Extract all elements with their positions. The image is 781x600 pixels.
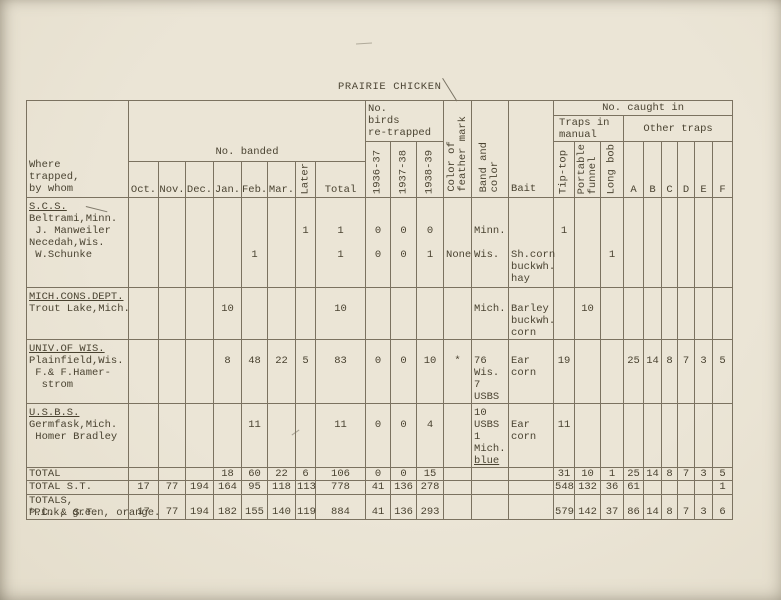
cell-line: USBS (472, 391, 508, 403)
cell-line (624, 343, 643, 355)
total-e-cell: 3 (695, 468, 713, 481)
cell (129, 468, 159, 481)
cell-line: Wis. (472, 249, 508, 261)
cell (129, 198, 159, 288)
cell-line: 0 (366, 225, 390, 237)
total-total-cell: 106 (316, 468, 366, 481)
scs-later-cell: 1 (296, 198, 316, 288)
cell-line: 83 (316, 355, 365, 367)
cell (695, 404, 713, 468)
cell (444, 468, 472, 481)
cell-line: S.C.S. (27, 201, 128, 213)
cell (644, 481, 662, 495)
cell-line: F.& F.Hamer- (27, 367, 128, 379)
cell (601, 288, 624, 340)
cell (391, 288, 417, 340)
cell-line (678, 343, 694, 355)
col-group-no-banded: No. banded (129, 101, 366, 162)
col-header-1937-38: 1937-38 (391, 142, 417, 198)
cell (662, 481, 678, 495)
total-long-bob-cell: 1 (601, 468, 624, 481)
totals-portable-cell: 142 (575, 495, 601, 520)
cell-line: corn (509, 327, 553, 339)
col-header-trap-e: E (695, 142, 713, 198)
total-st-later-cell: 113 (296, 481, 316, 495)
cell-line: None (444, 249, 471, 261)
cell-line: hay (509, 273, 553, 285)
cell-line: buckwh. (509, 261, 553, 273)
cell (268, 288, 296, 340)
cell (417, 288, 444, 340)
col-header-trap-c: C (662, 142, 678, 198)
cell-line: birds (366, 115, 443, 127)
col-header-nov: Nov. (159, 162, 186, 198)
col-header-trap-f: F (713, 142, 733, 198)
univ-c-cell: 8 (662, 340, 678, 404)
cell-line: No. (366, 103, 443, 115)
scanned-document-page: PRAIRIE CHICKEN Wheretrapped,by whom No.… (0, 0, 781, 600)
cell-line: Wis. (472, 367, 508, 379)
total-d-cell: 7 (678, 468, 695, 481)
col-group-no-caught-in: No. caught in (554, 101, 733, 116)
cell-line: 7 (678, 355, 694, 367)
cell-line (472, 343, 508, 355)
total-st-dec-cell: 194 (186, 481, 214, 495)
cell-line (472, 291, 508, 303)
totals-d-cell: 7 (678, 495, 695, 520)
univ-feb-cell: 48 (242, 340, 268, 404)
totals-b-cell: 14 (644, 495, 662, 520)
cell-line: Barley (509, 303, 553, 315)
col-header-total: Total (316, 162, 366, 198)
cell (575, 198, 601, 288)
total-portable-cell: 10 (575, 468, 601, 481)
cell (662, 198, 678, 288)
cell-line: 0 (391, 419, 416, 431)
cell-line: 76 (472, 355, 508, 367)
totals-later-cell: 119 (296, 495, 316, 520)
cell-line: manual (557, 129, 623, 141)
usbs-total-cell: 11 (316, 404, 366, 468)
cell-line (242, 343, 267, 355)
totals-dec-cell: 194 (186, 495, 214, 520)
cell-line (695, 343, 712, 355)
totals-feb-cell: 155 (242, 495, 268, 520)
cell-line (417, 213, 443, 225)
total-st-label-cell: TOTAL S.T. (27, 481, 129, 495)
univ-a-cell: 25 (624, 340, 644, 404)
totals-1936-37-cell: 41 (366, 495, 391, 520)
cell-line: 1 (316, 225, 365, 237)
cell-line (296, 343, 315, 355)
univ-mar-cell: 22 (268, 340, 296, 404)
col-header-portable-funnel: Portable funnel (575, 142, 601, 198)
cell (678, 481, 695, 495)
total-b-cell: 14 (644, 468, 662, 481)
usbs-1937-38-cell: 0 (391, 404, 417, 468)
cell-line: J. Manweiler (27, 225, 128, 237)
cell-line: Minn. (472, 225, 508, 237)
cell (268, 198, 296, 288)
scs-feb-cell: 1 (242, 198, 268, 288)
cell-line (242, 213, 267, 225)
cell (678, 288, 695, 340)
cell (129, 288, 159, 340)
cell-line (444, 213, 471, 225)
col-header-trap-a: A (624, 142, 644, 198)
cell (214, 198, 242, 288)
total-jan-cell: 18 (214, 468, 242, 481)
cell (159, 468, 186, 481)
cell-line: Where (27, 159, 128, 171)
col-header-feb: Feb. (242, 162, 268, 198)
cell (242, 288, 268, 340)
scs-feather-cell: None (444, 198, 472, 288)
cell (444, 481, 472, 495)
cell-line: 25 (624, 355, 643, 367)
total-1938-39-cell: 15 (417, 468, 444, 481)
cell-line: 1 (472, 431, 508, 443)
total-f-cell: 5 (713, 468, 733, 481)
cell (509, 468, 554, 481)
cell-line: W.Schunke (27, 249, 128, 261)
cell-line: 11 (242, 419, 267, 431)
cell-line: MICH.CONS.DEPT. (27, 291, 128, 303)
usbs-1938-39-cell: 4 (417, 404, 444, 468)
totals-1937-38-cell: 136 (391, 495, 417, 520)
cell-line: USBS (472, 419, 508, 431)
cell (678, 404, 695, 468)
cell-line: buckwh. (509, 315, 553, 327)
cell-line (444, 225, 471, 237)
cell-line (417, 343, 443, 355)
cell-line: trapped, (27, 171, 128, 183)
usbs-bait-cell: Earcorn (509, 404, 554, 468)
total-st-total-cell: 778 (316, 481, 366, 495)
page-title: PRAIRIE CHICKEN (338, 81, 442, 93)
cell-line (575, 291, 600, 303)
univ-where-cell: UNIV.OF WIS.Plainfield,Wis. F.& F.Hamer-… (27, 340, 129, 404)
cell-line (417, 237, 443, 249)
cell (159, 198, 186, 288)
mich-jan-cell: 10 (214, 288, 242, 340)
cell-line: 10 (316, 303, 365, 315)
scs-long-bob-cell: 1 (601, 198, 624, 288)
scs-total-cell: 11 (316, 198, 366, 288)
cell-line: 1 (316, 249, 365, 261)
col-header-jan: Jan. (214, 162, 242, 198)
cell-line (316, 291, 365, 303)
totals-e-cell: 3 (695, 495, 713, 520)
cell (695, 481, 713, 495)
cell-line: 4 (417, 419, 443, 431)
total-label-cell: TOTAL (27, 468, 129, 481)
mich-total-cell: 10 (316, 288, 366, 340)
cell (186, 288, 214, 340)
totals-mar-cell: 140 (268, 495, 296, 520)
totals-total-cell: 884 (316, 495, 366, 520)
univ-d-cell: 7 (678, 340, 695, 404)
cell (472, 495, 509, 520)
univ-1936-37-cell: 0 (366, 340, 391, 404)
col-header-band-color: Band and color (472, 101, 509, 198)
cell (662, 404, 678, 468)
col-header-mar: Mar. (268, 162, 296, 198)
cell-line (509, 343, 553, 355)
cell-line (296, 213, 315, 225)
cell-line: UNIV.OF WIS. (27, 343, 128, 355)
cell-line: Traps in (557, 117, 623, 129)
total-st-1937-38-cell: 136 (391, 481, 417, 495)
col-group-other-traps: Other traps (624, 116, 733, 142)
cell (472, 481, 509, 495)
cell-line (554, 213, 574, 225)
univ-feather-cell: * (444, 340, 472, 404)
cell-line (242, 225, 267, 237)
cell-line: 11 (554, 419, 574, 431)
cell (444, 288, 472, 340)
cell-line (214, 343, 241, 355)
cell-line (417, 407, 443, 419)
cell-line (554, 343, 574, 355)
total-st-a-cell: 61 (624, 481, 644, 495)
cell-line: 0 (366, 249, 390, 261)
row-total-st: TOTAL S.T. 17 77 194 164 95 118 113 778 … (27, 481, 733, 495)
usbs-where-cell: U.S.B.S.Germfask,Mich. Homer Bradley (27, 404, 129, 468)
cell-line: 10 (472, 407, 508, 419)
col-header-trap-d: D (678, 142, 695, 198)
cell (509, 495, 554, 520)
cell (186, 198, 214, 288)
cell-line (366, 201, 390, 213)
total-st-tip-top-cell: 548 (554, 481, 575, 495)
cell-line (316, 407, 365, 419)
cell-line: 14 (644, 355, 661, 367)
row-mich-cons-dept: MICH.CONS.DEPT.Trout Lake,Mich. 10 10 Mi… (27, 288, 733, 340)
cell-line (391, 343, 416, 355)
cell (644, 198, 662, 288)
col-header-trap-b: B (644, 142, 662, 198)
cell-line (554, 407, 574, 419)
univ-later-cell: 5 (296, 340, 316, 404)
cell-line (554, 201, 574, 213)
total-st-portable-cell: 132 (575, 481, 601, 495)
cell (624, 404, 644, 468)
col-header-feather-mark: Color of feather mark (444, 101, 472, 198)
prairie-chicken-data-table: Wheretrapped,by whom No. banded No.birds… (26, 100, 733, 520)
cell (575, 340, 601, 404)
cell (713, 288, 733, 340)
cell-line: corn (509, 431, 553, 443)
total-1936-37-cell: 0 (366, 468, 391, 481)
row-usbs: U.S.B.S.Germfask,Mich. Homer Bradley 11 … (27, 404, 733, 468)
cell-line (662, 343, 677, 355)
cell-line: 1 (296, 225, 315, 237)
cell-line: 0 (391, 355, 416, 367)
totals-c-cell: 8 (662, 495, 678, 520)
cell-line: 1 (601, 249, 623, 261)
cell-line: Mich. (472, 443, 508, 455)
scs-1937-38-cell: 00 (391, 198, 417, 288)
cell-line: 8 (214, 355, 241, 367)
cell-line: corn (509, 367, 553, 379)
cell-line: 0 (366, 355, 390, 367)
cell-line (444, 343, 471, 355)
cell-line (366, 343, 390, 355)
total-st-f-cell: 1 (713, 481, 733, 495)
totals-long-bob-cell: 37 (601, 495, 624, 520)
cell-line: 5 (713, 355, 732, 367)
cell-line (366, 407, 390, 419)
cell (159, 288, 186, 340)
cell-line: Mich. (472, 303, 508, 315)
cell (713, 404, 733, 468)
univ-total-cell: 83 (316, 340, 366, 404)
cell-line: Ear (509, 355, 553, 367)
pencil-dash-mark (356, 42, 372, 44)
col-header-1938-39: 1938-39 (417, 142, 444, 198)
cell (366, 288, 391, 340)
cell-line (601, 225, 623, 237)
cell-line (444, 201, 471, 213)
total-st-1936-37-cell: 41 (366, 481, 391, 495)
total-st-jan-cell: 164 (214, 481, 242, 495)
cell-line: 10 (417, 355, 443, 367)
cell-line: U.S.B.S. (27, 407, 128, 419)
cell-line (391, 237, 416, 249)
col-header-1936-37: 1936-37 (366, 142, 391, 198)
cell-line: 10 (575, 303, 600, 315)
scs-bait-cell: Sh.cornbuckwh.hay (509, 198, 554, 288)
cell-line (391, 201, 416, 213)
cell-line (472, 201, 508, 213)
cell (554, 288, 575, 340)
cell-line: blue (472, 455, 508, 467)
cell-line: Sh.corn (509, 249, 553, 261)
cell-line: Necedah,Wis. (27, 237, 128, 249)
cell-line: 5 (296, 355, 315, 367)
univ-e-cell: 3 (695, 340, 713, 404)
header-row-caught: Wheretrapped,by whom No. banded No.birds… (27, 101, 733, 116)
col-header-oct: Oct. (129, 162, 159, 198)
cell-line: Plainfield,Wis. (27, 355, 128, 367)
total-mar-cell: 22 (268, 468, 296, 481)
col-group-birds-retrapped: No.birdsre-trapped (366, 101, 444, 142)
row-total: TOTAL 18 60 22 6 106 0 0 15 31 10 1 25 1… (27, 468, 733, 481)
cell-line: 7 (472, 379, 508, 391)
col-header-dec: Dec. (186, 162, 214, 198)
mich-bait-cell: Barleybuckwh.corn (509, 288, 554, 340)
mich-portable-cell: 10 (575, 288, 601, 340)
total-st-mar-cell: 118 (268, 481, 296, 495)
total-1937-38-cell: 0 (391, 468, 417, 481)
pencil-slash-mark (442, 78, 457, 101)
cell-line: Beltrami,Minn. (27, 213, 128, 225)
cell-line (391, 213, 416, 225)
cell-line (316, 343, 365, 355)
totals-f-cell: 6 (713, 495, 733, 520)
cell-line: 10 (214, 303, 241, 315)
cell-line: 1 (417, 249, 443, 261)
cell-line (242, 237, 267, 249)
cell-line (472, 237, 508, 249)
cell-line: re-trapped (366, 127, 443, 139)
cell (644, 404, 662, 468)
cell (575, 404, 601, 468)
cell-line: strom (27, 379, 128, 391)
scs-1936-37-cell: 00 (366, 198, 391, 288)
cell-line: 0 (417, 225, 443, 237)
cell-line (509, 291, 553, 303)
cell-line (316, 237, 365, 249)
cell-line (366, 237, 390, 249)
scs-tip-top-cell: 1 (554, 198, 575, 288)
cell-line: 48 (242, 355, 267, 367)
cell-line: 0 (391, 225, 416, 237)
cell-line (444, 237, 471, 249)
cell (509, 481, 554, 495)
cell-line (644, 343, 661, 355)
cell (268, 404, 296, 468)
cell (296, 404, 316, 468)
cell-line: 1 (554, 225, 574, 237)
cell (601, 404, 624, 468)
cell-line (296, 201, 315, 213)
totals-tip-top-cell: 579 (554, 495, 575, 520)
cell (159, 404, 186, 468)
cell (662, 288, 678, 340)
col-header-long-bob: Long bob (601, 142, 624, 198)
cell (186, 404, 214, 468)
cell (296, 288, 316, 340)
cell (678, 198, 695, 288)
univ-jan-cell: 8 (214, 340, 242, 404)
cell-line (391, 407, 416, 419)
totals-nov-cell: 77 (159, 495, 186, 520)
totals-a-cell: 86 (624, 495, 644, 520)
univ-1938-39-cell: 10 (417, 340, 444, 404)
cell-line: Ear (509, 419, 553, 431)
cell (644, 288, 662, 340)
cell-line: 8 (662, 355, 677, 367)
cell-line (509, 213, 553, 225)
cell-line (509, 407, 553, 419)
col-header-bait: Bait (509, 101, 554, 198)
cell (601, 340, 624, 404)
cell-line: Germfask,Mich. (27, 419, 128, 431)
mich-where-cell: MICH.CONS.DEPT.Trout Lake,Mich. (27, 288, 129, 340)
col-header-where-trapped: Wheretrapped,by whom (27, 101, 129, 198)
row-scs: S.C.S.Beltrami,Minn. J. ManweilerNecedah… (27, 198, 733, 288)
cell-line (214, 291, 241, 303)
cell-line: 11 (316, 419, 365, 431)
cell (624, 198, 644, 288)
univ-1937-38-cell: 0 (391, 340, 417, 404)
cell-line (316, 213, 365, 225)
col-header-tip-top: Tip-top (554, 142, 575, 198)
univ-f-cell: 5 (713, 340, 733, 404)
univ-bait-cell: Earcorn (509, 340, 554, 404)
cell-line (601, 213, 623, 225)
usbs-1936-37-cell: 0 (366, 404, 391, 468)
usbs-tip-top-cell: 11 (554, 404, 575, 468)
total-c-cell: 8 (662, 468, 678, 481)
cell-line: 22 (268, 355, 295, 367)
cell (214, 404, 242, 468)
cell-line (268, 343, 295, 355)
univ-tip-top-cell: 19 (554, 340, 575, 404)
scs-where-cell: S.C.S.Beltrami,Minn. J. ManweilerNecedah… (27, 198, 129, 288)
